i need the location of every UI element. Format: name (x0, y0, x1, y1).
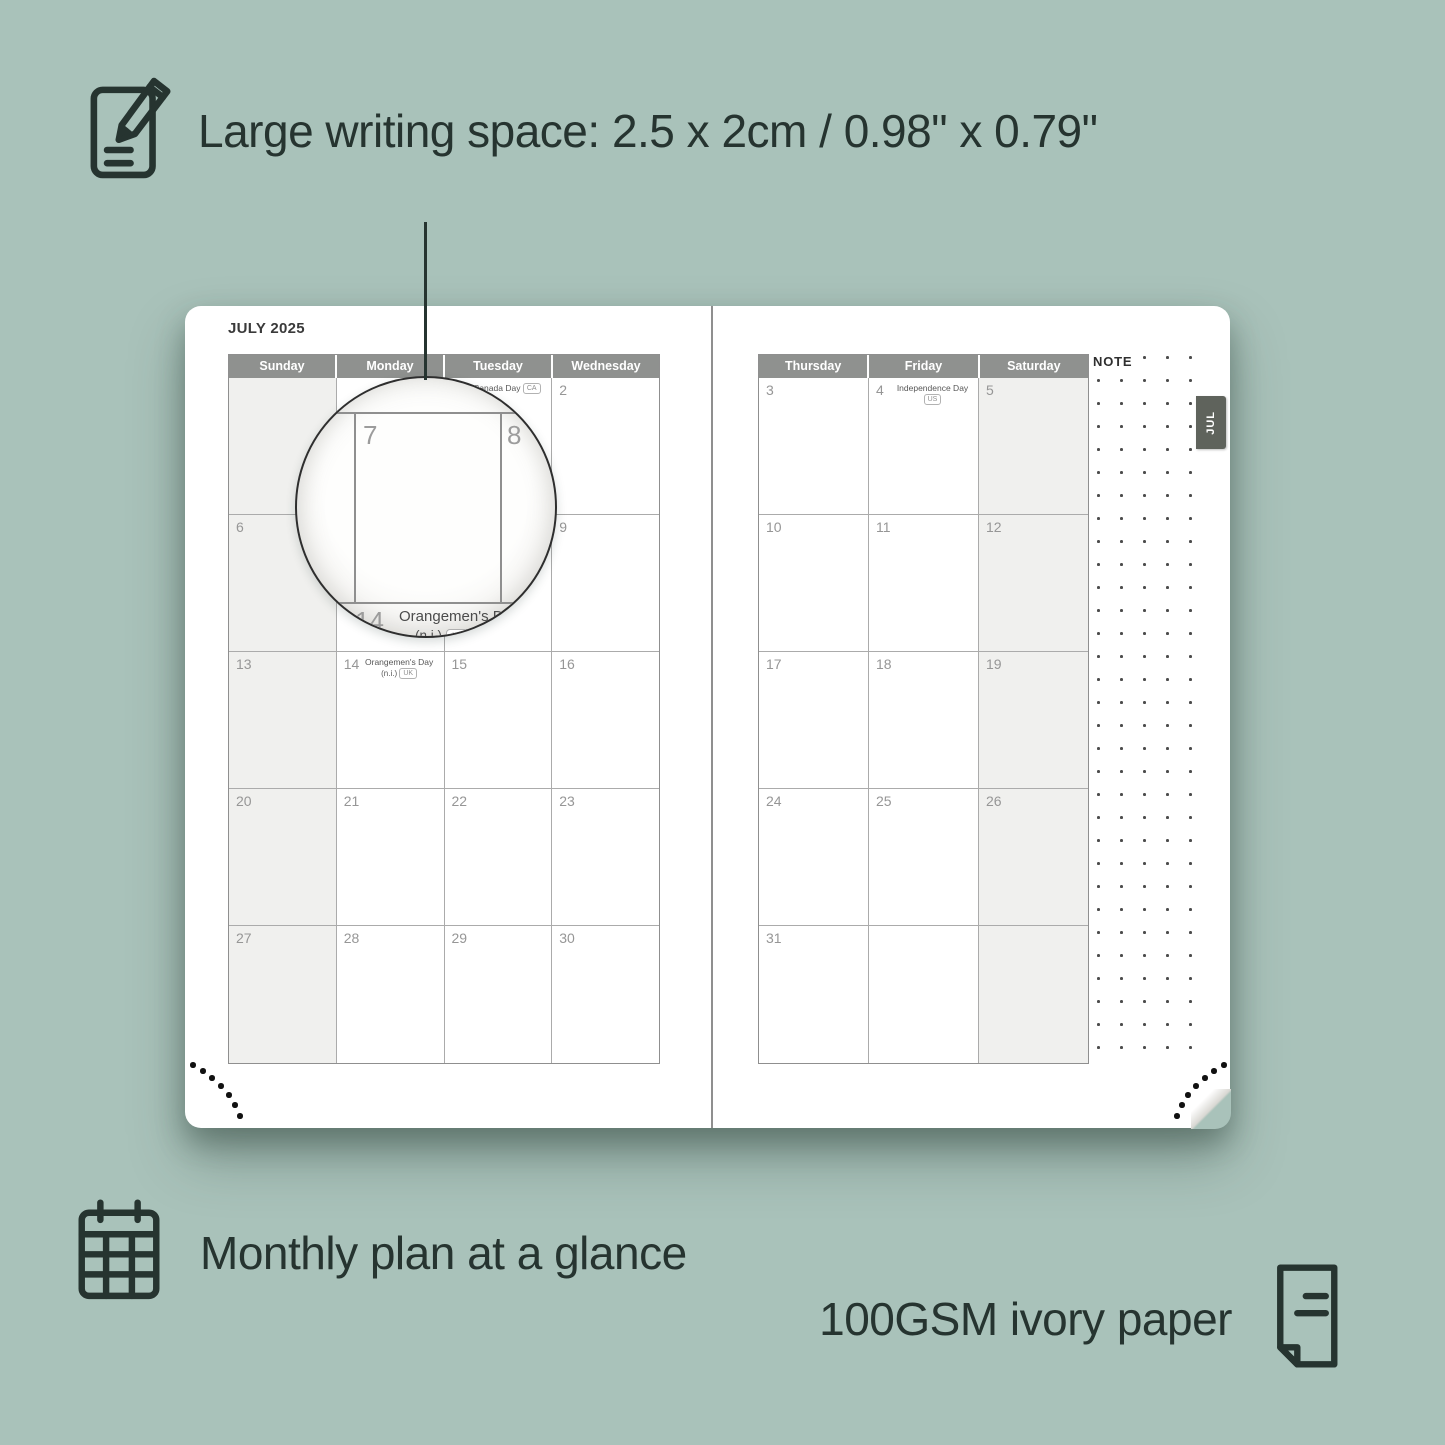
feature-monthly-plan: Monthly plan at a glance (76, 1198, 687, 1307)
calendar-cell: 25 (869, 789, 979, 926)
calendar-cell: 14Orangemen's Day (n.i.) UK (337, 652, 445, 789)
calendar-cell: 24 (759, 789, 869, 926)
feature-bottom-left-label: Monthly plan at a glance (200, 1226, 687, 1280)
calendar-cell: 12 (979, 515, 1088, 652)
magnifier-circle: 7 8 14 Orangemen's Day (n.i.) UK (295, 376, 557, 638)
calendar-cell: 23 (552, 789, 659, 926)
day-number: 28 (344, 930, 360, 946)
calendar-cell: 5 (979, 378, 1088, 515)
magnified-grid-line (354, 412, 356, 602)
day-number: 20 (236, 793, 252, 809)
magnifier-callout-line (424, 222, 427, 380)
feature-ivory-paper: 100GSM ivory paper (819, 1262, 1340, 1375)
week-row: 31 (759, 926, 1088, 1063)
calendar-cell (869, 926, 979, 1063)
day-number: 16 (559, 656, 575, 672)
magnified-day-7: 7 (363, 420, 377, 451)
feature-top-label: Large writing space: 2.5 x 2cm / 0.98" x… (198, 104, 1097, 158)
day-number: 5 (986, 382, 994, 398)
month-tab-jul[interactable]: JUL (1196, 396, 1226, 449)
right-calendar-grid: ThursdayFridaySaturday34Independence Day… (758, 354, 1089, 1064)
day-header: Tuesday (445, 355, 553, 378)
magnified-day-14: 14 (355, 606, 384, 637)
holiday-label: Orangemen's Day (359, 657, 440, 667)
pencil-note-icon (88, 72, 176, 189)
day-number: 18 (876, 656, 892, 672)
calendar-cell: 30 (552, 926, 659, 1063)
magnified-holiday: Orangemen's Day (399, 608, 519, 625)
month-title: JULY 2025 (228, 320, 305, 337)
magnified-grid-line (500, 412, 502, 602)
calendar-cell: 18 (869, 652, 979, 789)
day-number: 14 (344, 656, 360, 672)
day-number: 27 (236, 930, 252, 946)
day-number: 19 (986, 656, 1002, 672)
magnified-grid-line (297, 602, 557, 604)
day-number: 17 (766, 656, 782, 672)
calendar-cell: 22 (445, 789, 553, 926)
calendar-cell: 2 (552, 378, 659, 515)
feature-bottom-right-label: 100GSM ivory paper (819, 1292, 1232, 1346)
calendar-cell: 13 (229, 652, 337, 789)
day-header: Monday (337, 355, 445, 378)
day-number: 6 (236, 519, 244, 535)
paper-icon (1266, 1262, 1340, 1375)
day-number: 10 (766, 519, 782, 535)
calendar-cell: 26 (979, 789, 1088, 926)
page-corner-fold (1191, 1089, 1231, 1129)
day-header-row: SundayMondayTuesdayWednesday (229, 355, 659, 378)
calendar-cell: 21 (337, 789, 445, 926)
week-row: 20212223 (229, 789, 659, 926)
day-number: 30 (559, 930, 575, 946)
book-spine (711, 306, 713, 1128)
day-number: 24 (766, 793, 782, 809)
calendar-cell: 27 (229, 926, 337, 1063)
day-header-row: ThursdayFridaySaturday (759, 355, 1088, 378)
day-header: Saturday (980, 355, 1088, 378)
day-number: 29 (452, 930, 468, 946)
calendar-cell: 16 (552, 652, 659, 789)
day-number: 4 (876, 382, 884, 398)
day-number: 22 (452, 793, 468, 809)
day-number: 9 (559, 519, 567, 535)
month-tab-label: JUL (1205, 411, 1217, 435)
day-number: 11 (876, 519, 891, 535)
calendar-cell: 4Independence Day US (869, 378, 979, 515)
calendar-cell: 31 (759, 926, 869, 1063)
day-number: 25 (876, 793, 892, 809)
day-number: 12 (986, 519, 1002, 535)
holiday-label: Independence Day (891, 383, 974, 393)
magnified-day-8: 8 (507, 420, 521, 451)
day-header: Friday (869, 355, 979, 378)
day-header: Thursday (759, 355, 869, 378)
day-header: Wednesday (553, 355, 659, 378)
day-number: 15 (452, 656, 468, 672)
feature-large-writing-space: Large writing space: 2.5 x 2cm / 0.98" x… (88, 72, 1097, 189)
calendar-cell: 17 (759, 652, 869, 789)
calendar-cell: 3 (759, 378, 869, 515)
magnified-grid-line (297, 412, 557, 414)
calendar-grid-icon (76, 1198, 162, 1307)
calendar-cell: 28 (337, 926, 445, 1063)
calendar-cell: 15 (445, 652, 553, 789)
week-row: 242526 (759, 789, 1088, 926)
country-tag: UK (399, 668, 417, 679)
dot-grid (1097, 356, 1197, 1071)
calendar-cell: 10 (759, 515, 869, 652)
day-header: Sunday (229, 355, 337, 378)
week-row: 27282930 (229, 926, 659, 1063)
day-number: 31 (766, 930, 782, 946)
calendar-cell (979, 926, 1088, 1063)
day-number: 21 (344, 793, 360, 809)
day-number: 23 (559, 793, 575, 809)
calendar-cell: 19 (979, 652, 1088, 789)
day-number: 26 (986, 793, 1002, 809)
week-row: 171819 (759, 652, 1088, 789)
calendar-cell: 11 (869, 515, 979, 652)
holiday-detail: (n.i.) UK (359, 668, 440, 679)
week-row: 101112 (759, 515, 1088, 652)
country-tag: CA (523, 383, 541, 394)
calendar-cell: 29 (445, 926, 553, 1063)
calendar-cell: 9 (552, 515, 659, 652)
day-number: 3 (766, 382, 774, 398)
week-row: 1314Orangemen's Day (n.i.) UK1516 (229, 652, 659, 789)
calendar-cell: 20 (229, 789, 337, 926)
holiday-detail: US (891, 394, 974, 405)
day-number: 13 (236, 656, 252, 672)
day-number: 2 (559, 382, 567, 398)
week-row: 34Independence Day US5 (759, 378, 1088, 515)
country-tag: US (924, 394, 942, 405)
